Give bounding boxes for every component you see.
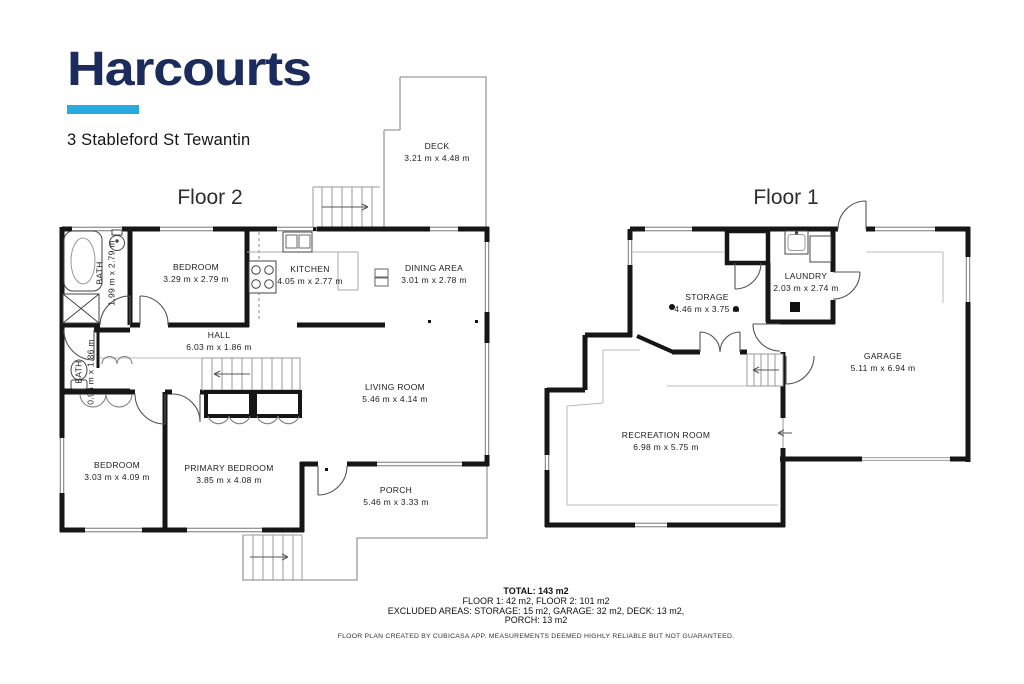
room-label-bedroom-upper: BEDROOM3.29 m x 2.79 m [163, 262, 228, 285]
deck-stairs [313, 187, 380, 227]
harcourts-logo: Harcourts [67, 46, 311, 94]
floor2-title: Floor 2 [177, 186, 242, 210]
kitchen-sink-icon [283, 232, 312, 252]
floorplan-drawing [0, 0, 1024, 684]
room-label-bath-upper: BATH1.99 m x 2.79 m [95, 240, 118, 305]
garage-door-line [862, 458, 950, 461]
disclaimer-text: FLOOR PLAN CREATED BY CUBICASA APP. MEAS… [338, 633, 735, 640]
stove-icon [249, 261, 276, 293]
excluded-areas-line2: PORCH: 13 m2 [388, 616, 684, 626]
room-label-porch: PORCH5.46 m x 3.33 m [363, 485, 428, 508]
floor1-title: Floor 1 [753, 186, 818, 210]
property-address: 3 Stableford St Tewantin [67, 131, 250, 150]
room-label-garage: GARAGE5.11 m x 6.94 m [851, 351, 916, 374]
floor2-stairs [202, 358, 300, 390]
fridge-icon [375, 269, 388, 286]
washer-icon [810, 236, 831, 262]
room-label-recreation: RECREATION ROOM6.98 m x 5.75 m [622, 430, 710, 453]
room-label-living: LIVING ROOM5.46 m x 4.14 m [362, 382, 427, 405]
room-label-laundry: LAUNDRY2.03 m x 2.74 m [773, 271, 838, 294]
room-label-storage: STORAGE4.46 m x 3.75 m [674, 292, 739, 315]
diagonal-wall [637, 336, 673, 352]
laundry-sink-icon [785, 231, 808, 254]
room-label-deck: DECK3.21 m x 4.48 m [404, 141, 469, 164]
porch-outline [243, 466, 487, 580]
fixture-square [790, 302, 800, 312]
floorplan-page: Harcourts 3 Stableford St Tewantin Floor… [0, 0, 1024, 684]
room-label-hall: HALL6.03 m x 1.86 m [186, 330, 251, 353]
area-summary: TOTAL: 143 m2 FLOOR 1: 42 m2, FLOOR 2: 1… [388, 587, 684, 626]
room-label-primary-bedroom: PRIMARY BEDROOM3.85 m x 4.08 m [184, 463, 273, 486]
storage-nook [727, 231, 768, 263]
logo-underline-bar [67, 105, 139, 114]
room-label-bedroom-lower: BEDROOM3.03 m x 4.09 m [84, 460, 149, 483]
wall-opening [778, 418, 792, 448]
porch-stairs [243, 535, 302, 580]
room-label-dining: DINING AREA3.01 m x 2.78 m [401, 263, 466, 286]
floor1-stairs [747, 354, 783, 386]
room-label-bath-lower: BATH0.96 m x 1.86 m [74, 339, 97, 404]
room-label-kitchen: KITCHEN4.05 m x 2.77 m [277, 264, 342, 287]
wardrobe-icon [206, 392, 300, 416]
